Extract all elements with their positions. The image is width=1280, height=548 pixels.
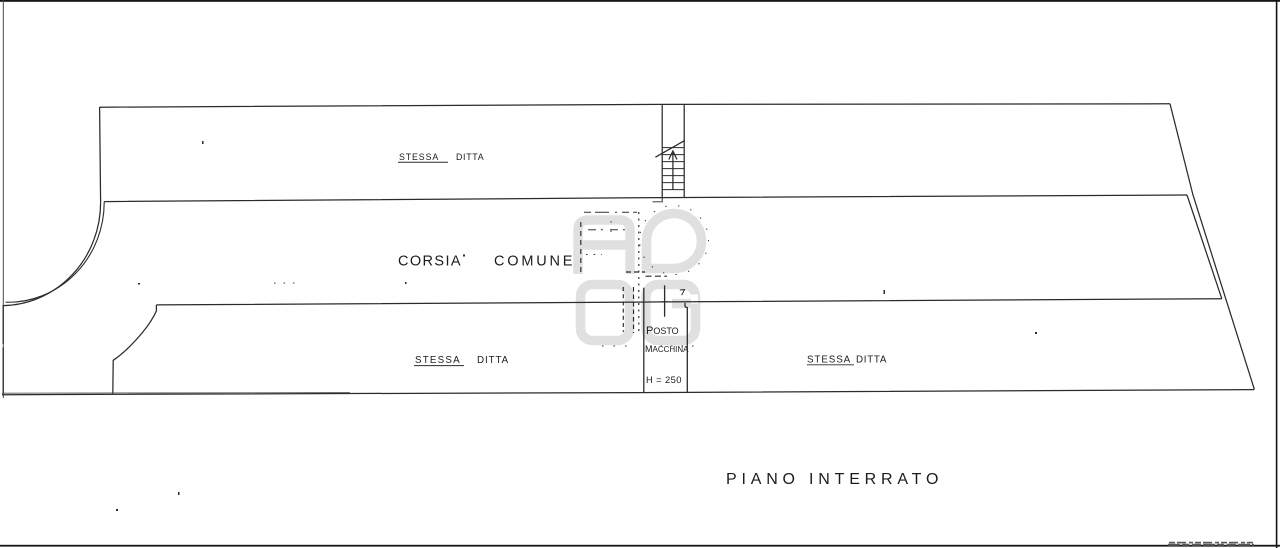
svg-text:STESSA: STESSA xyxy=(415,355,461,366)
svg-text:COMUNE: COMUNE xyxy=(494,254,575,270)
svg-text:MACCHINA: MACCHINA xyxy=(645,344,689,354)
svg-text:H = 250: H = 250 xyxy=(646,374,682,385)
svg-text:CORSIA: CORSIA xyxy=(398,254,462,270)
svg-text:DITTA: DITTA xyxy=(856,355,887,366)
svg-text:STESSA: STESSA xyxy=(807,355,851,366)
svg-text:POSTO: POSTO xyxy=(646,325,679,337)
svg-text:STESSA: STESSA xyxy=(399,152,439,162)
svg-text:DITTA: DITTA xyxy=(477,355,509,366)
svg-text:DITTA: DITTA xyxy=(456,152,484,162)
svg-text:PIANO INTERRATO: PIANO INTERRATO xyxy=(726,471,943,488)
